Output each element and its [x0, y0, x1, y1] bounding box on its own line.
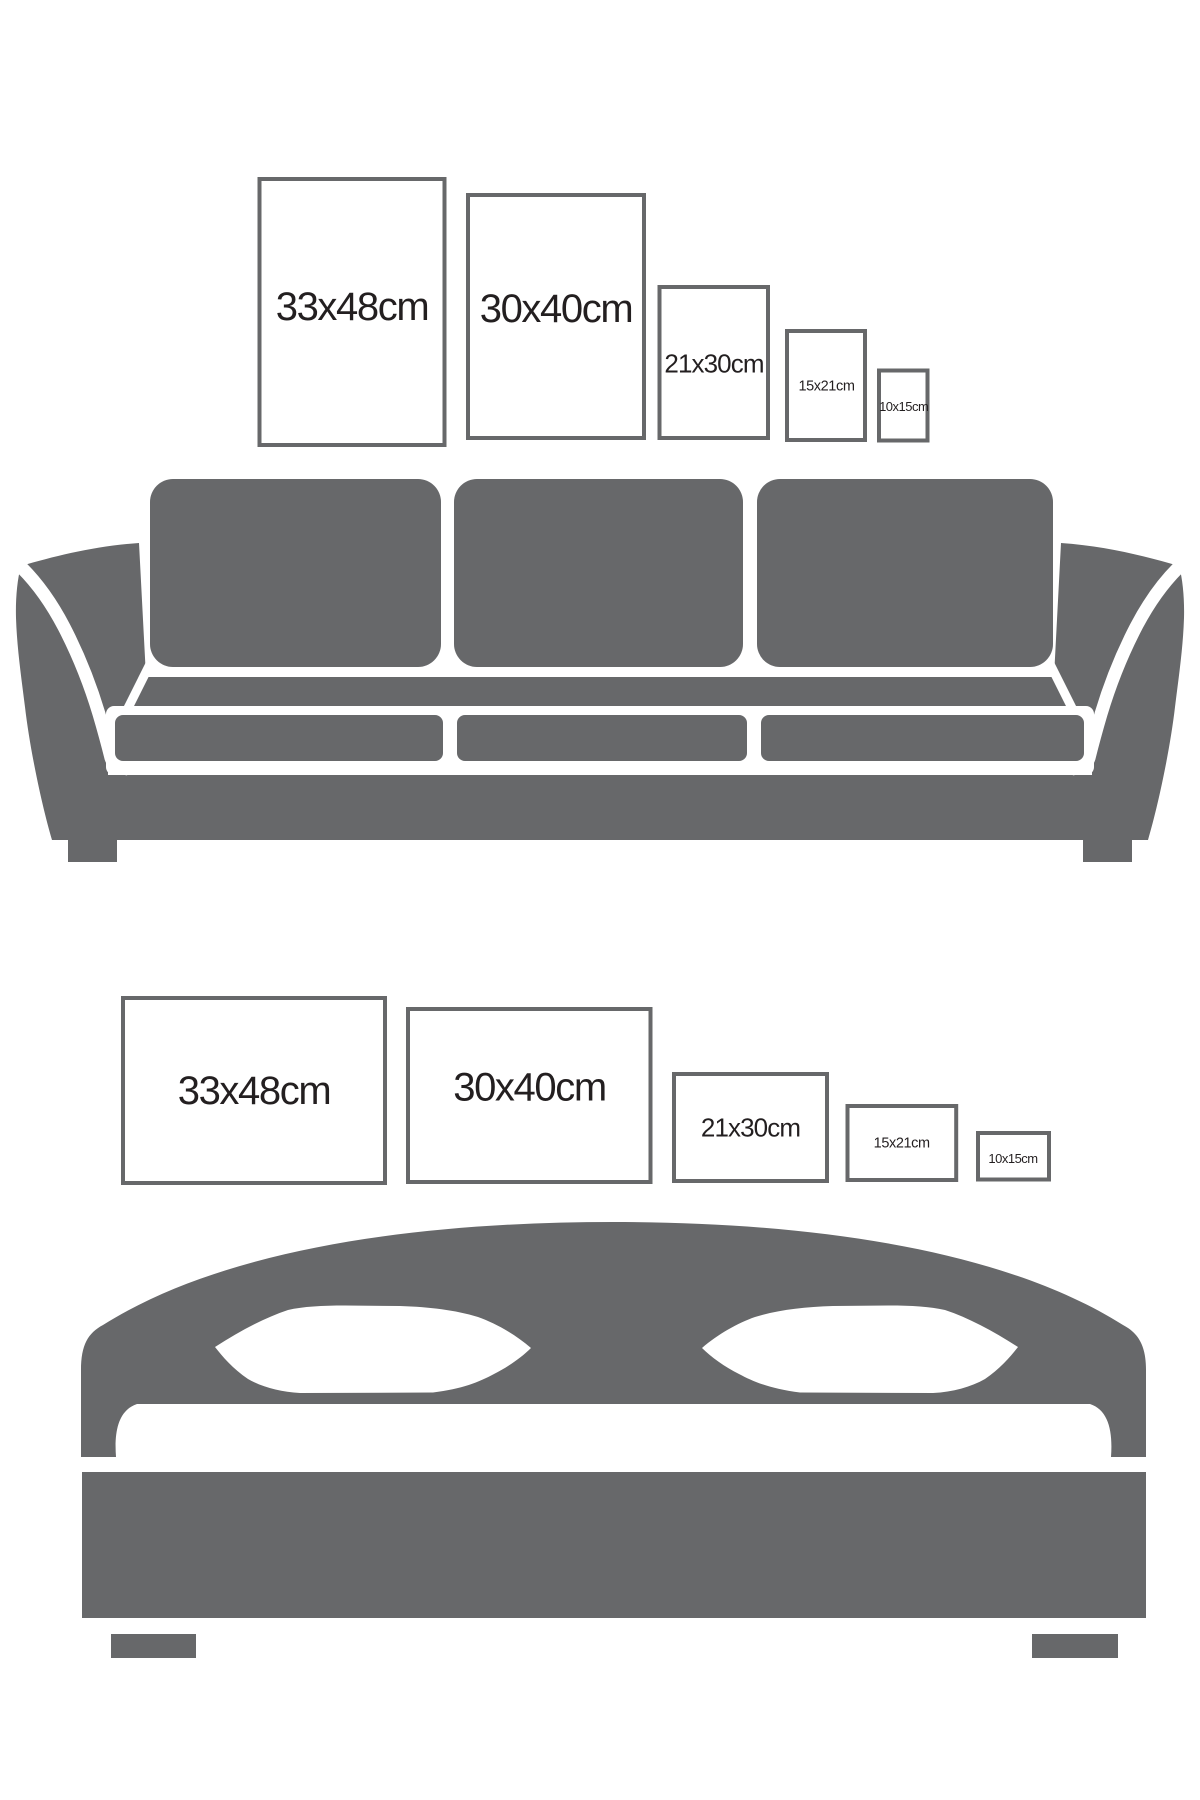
- svg-text:15x21cm: 15x21cm: [874, 1136, 930, 1152]
- svg-text:33x48cm: 33x48cm: [178, 1069, 331, 1113]
- svg-text:33x48cm: 33x48cm: [276, 285, 429, 329]
- svg-text:10x15cm: 10x15cm: [879, 399, 928, 414]
- svg-text:21x30cm: 21x30cm: [664, 349, 763, 379]
- svg-text:30x40cm: 30x40cm: [480, 287, 633, 331]
- svg-text:21x30cm: 21x30cm: [701, 1113, 800, 1143]
- svg-text:10x15cm: 10x15cm: [988, 1151, 1037, 1166]
- svg-text:30x40cm: 30x40cm: [453, 1066, 606, 1110]
- svg-text:15x21cm: 15x21cm: [798, 379, 854, 395]
